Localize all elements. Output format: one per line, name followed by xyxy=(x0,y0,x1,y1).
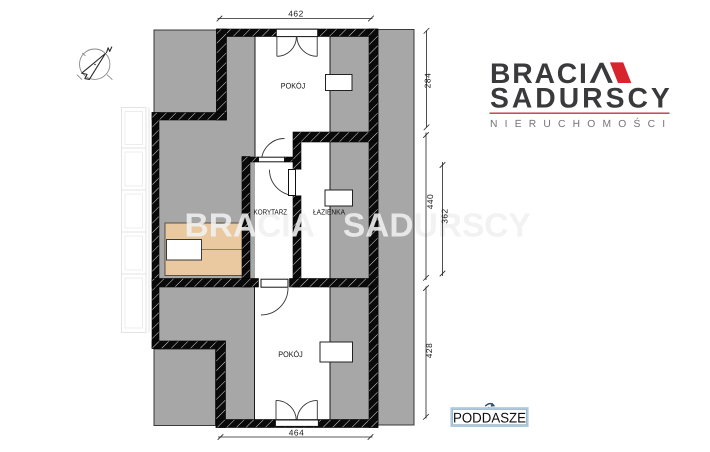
svg-text:SADURSCY: SADURSCY xyxy=(490,81,673,113)
svg-text:ŁAZIENKA: ŁAZIENKA xyxy=(313,208,345,217)
svg-text:POKÓJ: POKÓJ xyxy=(278,350,303,359)
svg-text:POKÓJ: POKÓJ xyxy=(281,82,306,91)
svg-text:284: 284 xyxy=(423,73,433,88)
svg-text:362: 362 xyxy=(439,208,449,223)
svg-text:PODDASZE: PODDASZE xyxy=(453,410,526,426)
svg-text:KORYTARZ: KORYTARZ xyxy=(254,208,288,217)
svg-text:NIERUCHOMOŚCI: NIERUCHOMOŚCI xyxy=(490,117,672,130)
svg-text:BRACIA SADURSCY: BRACIA SADURSCY xyxy=(185,208,531,245)
svg-text:428: 428 xyxy=(424,343,434,358)
svg-text:464: 464 xyxy=(289,428,304,438)
svg-text:462: 462 xyxy=(288,9,303,19)
svg-text:440: 440 xyxy=(425,194,435,209)
